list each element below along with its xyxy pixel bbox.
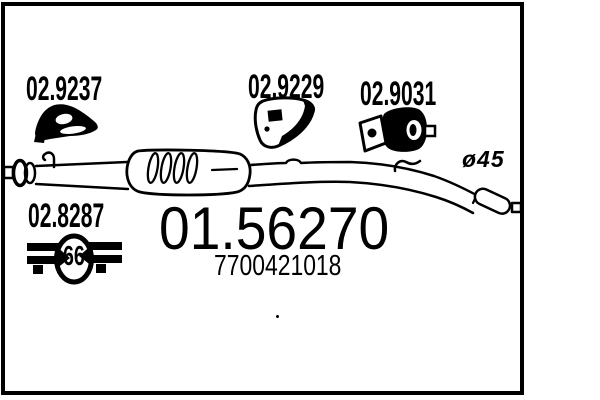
inlet-pipe-bottom xyxy=(36,184,128,189)
clamp-size-label: 66 xyxy=(63,242,94,270)
oem-reference-number: 7700421018 xyxy=(214,252,375,281)
tail-pipe-tip xyxy=(472,186,512,216)
part-code-text: 02.9031 xyxy=(360,77,436,111)
pipe-diameter-label: ø45 xyxy=(462,148,505,171)
inlet-pipe-top xyxy=(36,162,127,166)
part-code-text: 02.8287 xyxy=(28,199,104,233)
tail-mount-square xyxy=(512,203,521,212)
exhaust-parts-diagram: 02.9237 02.9229 02.9031 02.8287 66 ø45 0… xyxy=(0,0,600,400)
pipe-clamp-icon xyxy=(360,107,435,152)
part-code-pipe-clamp: 02.9031 xyxy=(360,77,483,111)
silencer-seam-line xyxy=(212,169,237,170)
stray-dot xyxy=(276,315,279,318)
part-code-rubber-hanger: 02.9237 xyxy=(26,72,149,106)
part-code-mounting-bracket: 02.9229 xyxy=(248,70,371,104)
inlet-mount-square xyxy=(4,167,13,178)
silencer-body xyxy=(127,150,250,195)
rubber-hanger-icon xyxy=(34,104,98,143)
part-code-text: 02.9237 xyxy=(26,72,102,106)
part-code-band-clamp: 02.8287 xyxy=(28,199,151,233)
outlet-pipe-top xyxy=(251,160,480,197)
part-code-text: 02.9229 xyxy=(248,70,324,104)
